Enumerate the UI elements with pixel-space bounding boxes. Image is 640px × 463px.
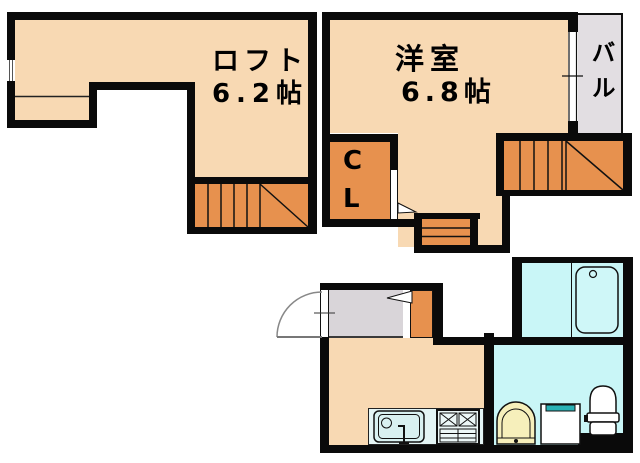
loft-room-name: ロフト — [160, 46, 308, 78]
wall — [414, 245, 510, 253]
wall — [512, 257, 632, 263]
bathroom-floor — [522, 263, 623, 337]
stairs-upper-right — [504, 141, 623, 190]
small-steps — [422, 219, 470, 245]
closet-door-opening — [390, 170, 398, 219]
wall — [512, 257, 522, 343]
wall-fill — [578, 433, 624, 453]
loft-floor-left-arm — [15, 82, 89, 120]
western-room-label: 洋室 6.8帖 — [395, 42, 496, 110]
wall — [484, 337, 632, 345]
washroom-floor — [494, 345, 623, 445]
window — [568, 32, 578, 121]
wall — [7, 12, 317, 20]
entrance-door-opening — [320, 290, 329, 337]
kitchen-counter — [368, 408, 484, 445]
wall — [496, 190, 632, 196]
western-room-name: 洋室 — [395, 42, 496, 76]
wall — [433, 283, 443, 345]
wall — [623, 257, 633, 453]
stairs-upper-left — [195, 184, 308, 227]
floor-plan: ロフト 6.2帖 洋室 6.8帖 バル CL — [0, 0, 640, 463]
wall — [496, 133, 632, 141]
wall — [322, 134, 398, 142]
wall — [496, 133, 504, 196]
balcony-label: バル — [584, 40, 619, 110]
wall — [322, 12, 578, 20]
entrance-hall-floor — [329, 290, 403, 338]
western-room-size: 6.8帖 — [401, 76, 496, 110]
wall — [308, 12, 317, 234]
wall — [568, 12, 578, 32]
wall — [187, 227, 317, 234]
wall — [320, 337, 329, 453]
window — [7, 60, 15, 81]
wall — [623, 141, 632, 196]
wall — [89, 90, 97, 121]
wall — [484, 333, 494, 453]
wall — [322, 219, 422, 227]
wall — [7, 120, 97, 128]
wall — [187, 177, 317, 184]
wall — [322, 12, 330, 227]
loft-label: ロフト 6.2帖 — [160, 46, 308, 110]
loft-room-size: 6.2帖 — [160, 78, 308, 110]
wall — [320, 283, 443, 290]
shoe-cabinet — [410, 290, 433, 338]
wall — [390, 134, 398, 170]
closet-label: CL — [343, 142, 367, 218]
